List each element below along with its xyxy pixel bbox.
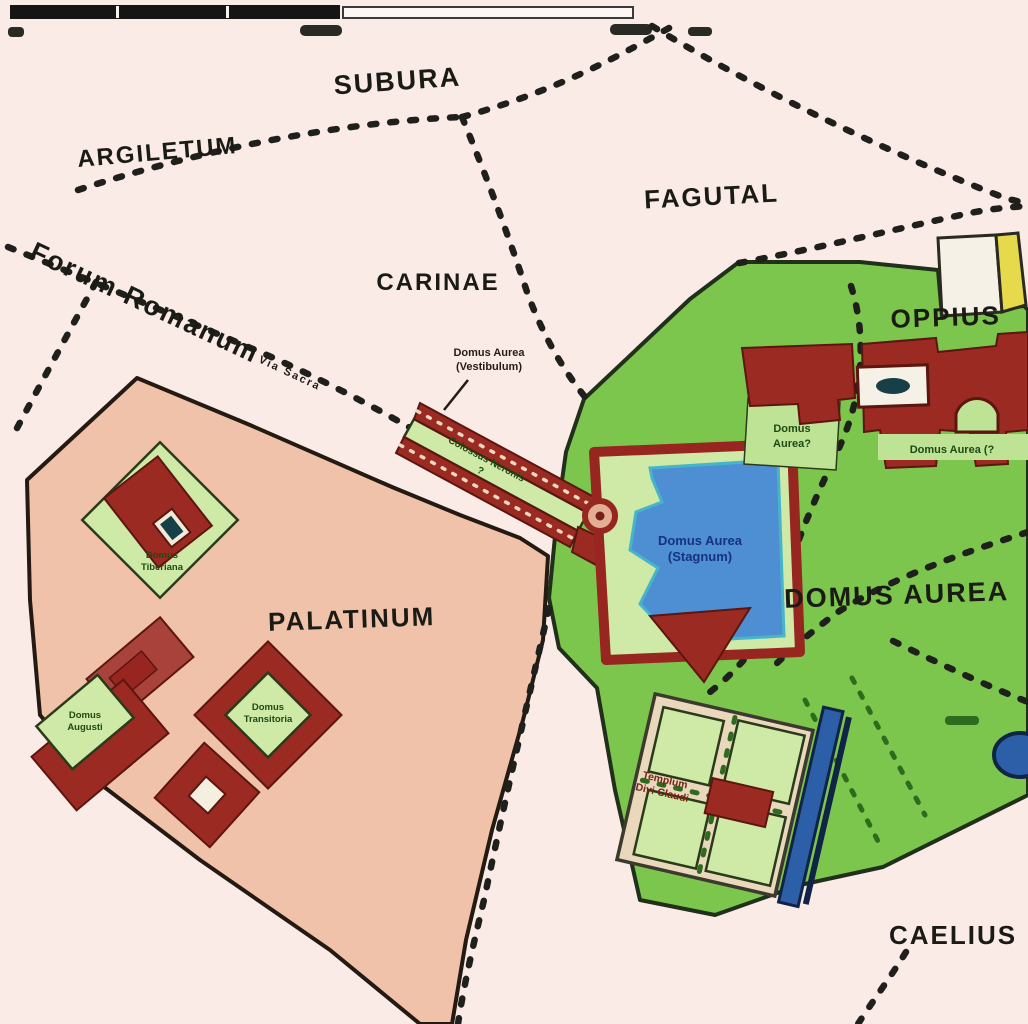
scale-tick <box>688 27 712 36</box>
label-oppius: OPPIUS <box>890 300 1001 334</box>
label-palatine-east-line2: Transitoria <box>244 714 293 725</box>
label-oppius-west-line1: Domus <box>773 423 810 435</box>
octagonal-hall-mark <box>876 378 910 394</box>
illegible-small-label <box>945 716 979 725</box>
label-palatine-north-line1: Domus <box>146 550 178 561</box>
scale-bar-divider <box>226 6 229 18</box>
label-vestibulum-line1: Domus Aurea <box>453 347 525 359</box>
scale-bar-outline <box>343 7 633 18</box>
arched-court <box>956 399 998 432</box>
label-oppius-west-line2: Aurea? <box>773 438 811 450</box>
round-monument-center <box>596 512 605 521</box>
label-vestibulum-line2: (Vestibulum) <box>456 361 522 373</box>
label-caelius: CAELIUS <box>889 920 1017 950</box>
label-palatinum: PALATINUM <box>268 601 436 637</box>
right-edge-basin <box>994 733 1028 777</box>
label-palatine-east-line1: Domus <box>252 702 284 713</box>
label-palatine-north-line2: Tiberiana <box>141 562 184 573</box>
scale-tick <box>8 27 24 37</box>
map-canvas: Templum Divi Claudi SUBURA ARGILETUM FAG… <box>0 0 1028 1024</box>
scale-bar-divider <box>116 6 119 18</box>
scale-tick <box>300 25 342 36</box>
scale-tick <box>610 24 652 35</box>
label-carinae: CARINAE <box>376 269 499 296</box>
label-palatine-west-line2: Augusti <box>67 722 102 733</box>
platform-garden-q3 <box>634 790 711 869</box>
label-stagnum-line1: Domus Aurea <box>658 533 743 548</box>
rome-map: Templum Divi Claudi SUBURA ARGILETUM FAG… <box>0 0 1028 1024</box>
label-palatine-west-line1: Domus <box>69 710 101 721</box>
scale-bar-filled <box>10 5 340 19</box>
label-oppius-east: Domus Aurea (? <box>910 444 995 456</box>
label-stagnum-line2: (Stagnum) <box>668 549 732 564</box>
